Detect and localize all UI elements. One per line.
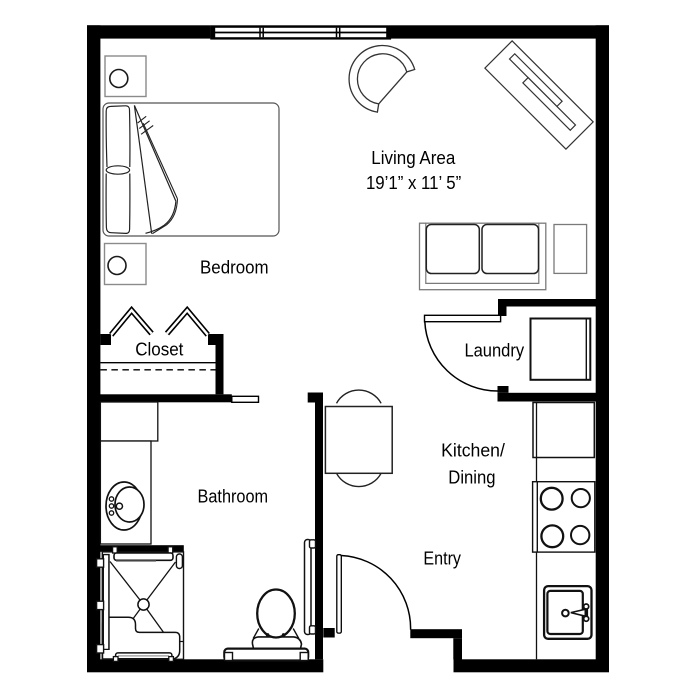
svg-text:19’1” x 11’ 5”: 19’1” x 11’ 5” [366, 172, 461, 193]
svg-text:Living Area: Living Area [371, 147, 456, 168]
svg-text:Dining: Dining [448, 467, 495, 488]
svg-text:Closet: Closet [135, 338, 183, 359]
svg-text:Bathroom: Bathroom [198, 486, 269, 507]
svg-text:Bedroom: Bedroom [200, 257, 269, 278]
svg-text:Laundry: Laundry [464, 339, 524, 360]
svg-text:Kitchen/: Kitchen/ [441, 440, 506, 461]
svg-text:Entry: Entry [423, 547, 461, 568]
